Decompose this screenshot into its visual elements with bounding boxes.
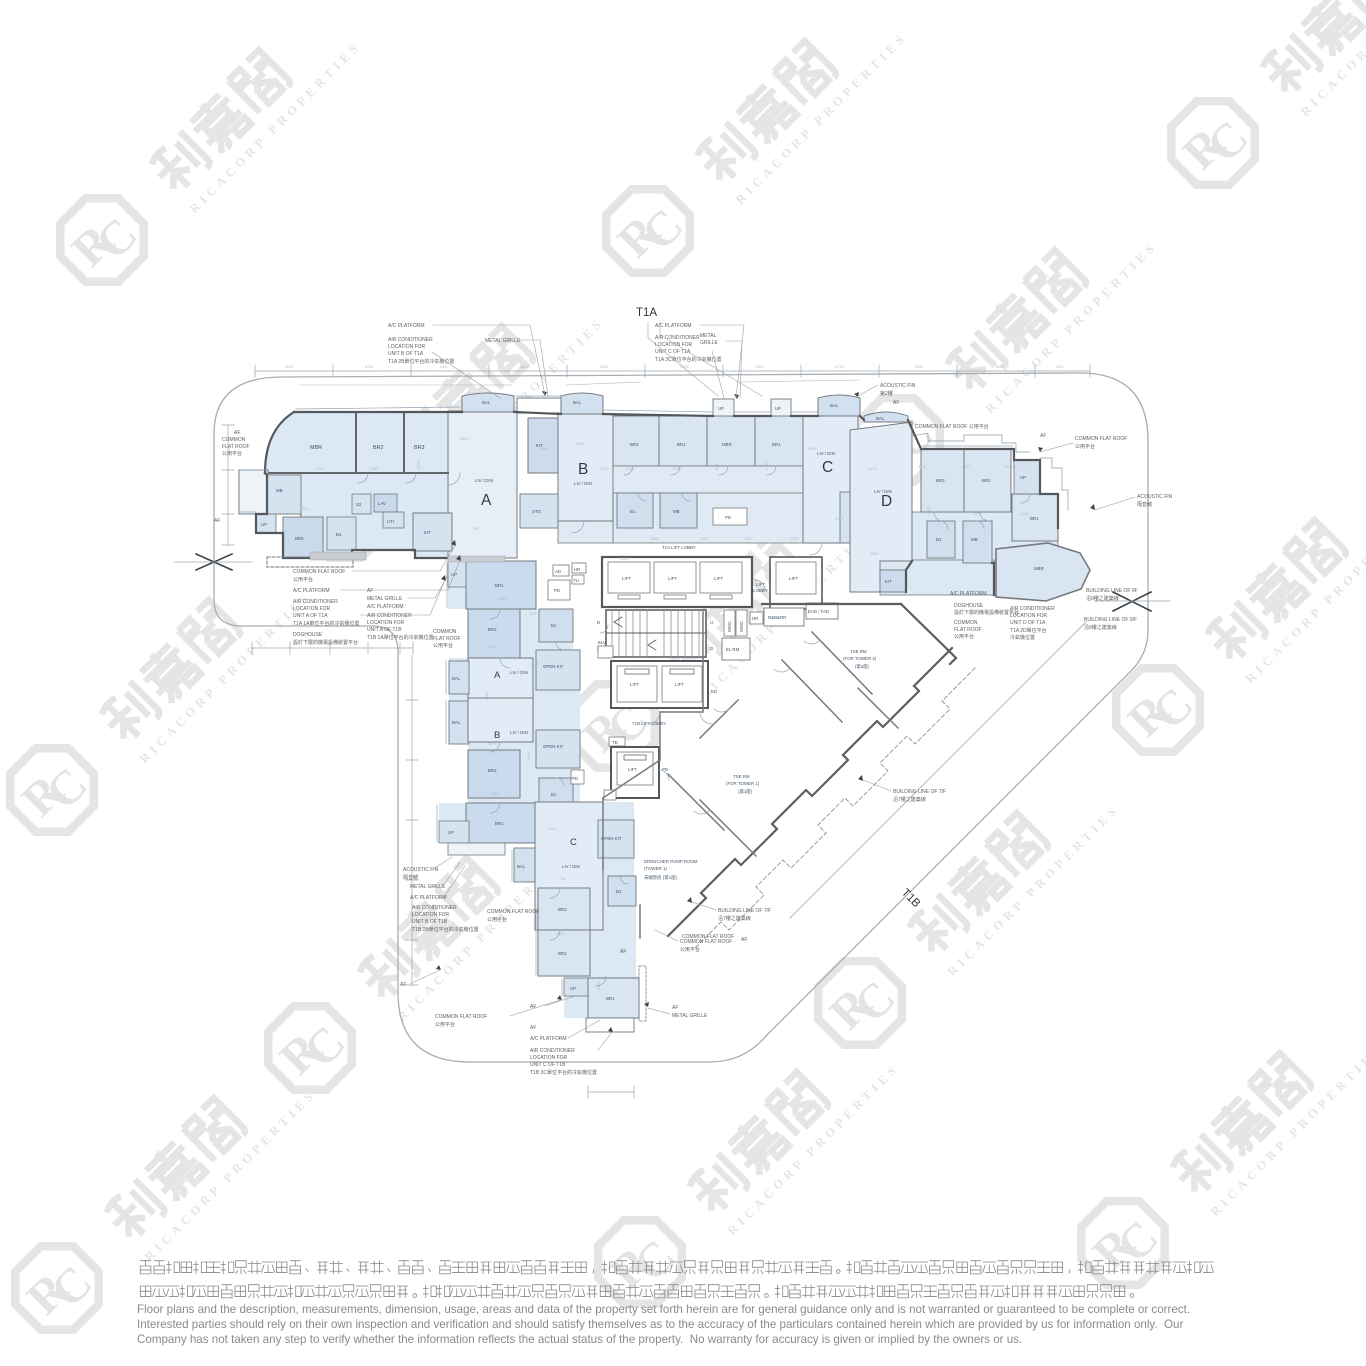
svg-text:公用平台: 公用平台 bbox=[293, 576, 313, 583]
svg-text:隔音鰭: 隔音鰭 bbox=[403, 874, 418, 881]
svg-text:TD: TD bbox=[612, 740, 618, 745]
svg-text:GRILLE: GRILLE bbox=[700, 340, 718, 346]
svg-text:A/C PLATFORM: A/C PLATFORM bbox=[367, 604, 404, 610]
svg-text:A/C PLATFORM: A/C PLATFORM bbox=[655, 323, 692, 329]
svg-text:BAL: BAL bbox=[452, 676, 461, 681]
svg-text:BR3: BR3 bbox=[936, 478, 945, 483]
svg-text:LOCATION FOR: LOCATION FOR bbox=[388, 344, 426, 350]
svg-text:U: U bbox=[710, 620, 713, 625]
svg-text:A/C PLATFORM: A/C PLATFORM bbox=[410, 895, 447, 901]
svg-text:B1: B1 bbox=[336, 532, 342, 537]
svg-text:D: D bbox=[881, 493, 892, 510]
svg-text:METAL GRILLE: METAL GRILLE bbox=[485, 338, 521, 344]
svg-text:MBR: MBR bbox=[722, 442, 732, 447]
svg-text:6262: 6262 bbox=[915, 365, 923, 369]
svg-text:AF: AF bbox=[893, 400, 899, 406]
svg-text:S2: S2 bbox=[356, 502, 362, 507]
svg-text:MB: MB bbox=[673, 509, 680, 514]
svg-text:1800: 1800 bbox=[755, 365, 763, 369]
svg-text:LIV / DIN: LIV / DIN bbox=[574, 481, 592, 486]
svg-text:AF: AF bbox=[400, 982, 406, 988]
svg-text:BAL: BAL bbox=[452, 720, 461, 725]
svg-text:B1: B1 bbox=[551, 623, 557, 628]
svg-text:ELV: ELV bbox=[598, 640, 606, 645]
svg-text:BAL: BAL bbox=[482, 400, 491, 405]
svg-text:TU: TU bbox=[573, 578, 579, 583]
svg-text:UP: UP bbox=[1020, 475, 1026, 480]
svg-text:BR5: BR5 bbox=[295, 536, 304, 541]
svg-text:UP: UP bbox=[775, 406, 781, 411]
svg-text:EL RM: EL RM bbox=[726, 647, 740, 652]
svg-text:AF: AF bbox=[367, 588, 373, 594]
svg-text:1925: 1925 bbox=[490, 792, 498, 796]
svg-text:BAL: BAL bbox=[517, 864, 526, 869]
svg-text:BUILDING LINE OF 9F: BUILDING LINE OF 9F bbox=[1086, 588, 1138, 594]
svg-text:COMMON FLAT ROOF: COMMON FLAT ROOF bbox=[1075, 436, 1127, 442]
svg-text:公用平台: 公用平台 bbox=[222, 450, 242, 457]
svg-text:PD: PD bbox=[725, 515, 731, 520]
svg-text:Company has not taken any step: Company has not taken any step to verify… bbox=[137, 1333, 1022, 1346]
svg-text:875: 875 bbox=[530, 612, 536, 616]
svg-text:UNIT A OF T1B: UNIT A OF T1B bbox=[367, 627, 402, 633]
svg-text:BR1: BR1 bbox=[606, 996, 615, 1001]
svg-text:2005: 2005 bbox=[1005, 465, 1013, 469]
svg-text:LIV / DIN: LIV / DIN bbox=[510, 730, 528, 735]
svg-text:2340: 2340 bbox=[527, 752, 531, 760]
svg-text:KIT: KIT bbox=[424, 530, 431, 535]
svg-text:(FOR TOWER 1): (FOR TOWER 1) bbox=[726, 781, 760, 786]
svg-text:KIT: KIT bbox=[885, 579, 892, 584]
svg-text:A/C PLATFORM: A/C PLATFORM bbox=[388, 323, 425, 329]
svg-text:LIFT: LIFT bbox=[789, 576, 798, 581]
svg-text:AF: AF bbox=[530, 1025, 536, 1031]
svg-text:LOCATION FOR: LOCATION FOR bbox=[293, 606, 331, 612]
svg-text:LOBBY: LOBBY bbox=[753, 588, 768, 593]
svg-text:A/C PLATFORM: A/C PLATFORM bbox=[950, 591, 987, 597]
svg-text:AF: AF bbox=[1040, 433, 1046, 439]
svg-text:1375: 1375 bbox=[765, 462, 769, 470]
svg-text:TSE RM: TSE RM bbox=[733, 774, 750, 779]
svg-text:1400: 1400 bbox=[1055, 365, 1063, 369]
svg-text:BR3: BR3 bbox=[414, 445, 425, 451]
svg-text:BR3: BR3 bbox=[558, 907, 567, 912]
svg-text:LOCATION FOR: LOCATION FOR bbox=[655, 342, 693, 348]
svg-text:METAL GRILLE: METAL GRILLE bbox=[367, 596, 403, 602]
svg-text:4475: 4475 bbox=[285, 365, 293, 369]
svg-text:METAL GRILLE: METAL GRILLE bbox=[410, 884, 446, 890]
svg-text:設於下層的機電設備裝置平台: 設於下層的機電設備裝置平台 bbox=[293, 639, 358, 646]
svg-text:LIV / DIN: LIV / DIN bbox=[562, 864, 580, 869]
svg-text:沿7樓之建築線: 沿7樓之建築線 bbox=[893, 796, 926, 803]
svg-text:BR1: BR1 bbox=[772, 442, 781, 447]
svg-text:AF: AF bbox=[620, 949, 626, 955]
svg-text:OPEN KIT: OPEN KIT bbox=[543, 744, 564, 749]
svg-text:T1B LIFT LOBBY: T1B LIFT LOBBY bbox=[632, 721, 666, 726]
svg-text:3405: 3405 bbox=[575, 442, 583, 446]
svg-text:LOCATION FOR: LOCATION FOR bbox=[1010, 613, 1048, 619]
svg-text:OPEN KIT: OPEN KIT bbox=[601, 836, 622, 841]
svg-text:末端泵房 (第1座): 末端泵房 (第1座) bbox=[644, 874, 677, 881]
svg-text:EAD / FAD: EAD / FAD bbox=[808, 609, 829, 614]
svg-text:FLAT ROOF: FLAT ROOF bbox=[222, 444, 250, 450]
svg-text:BUILDING LINE OF 7/F: BUILDING LINE OF 7/F bbox=[893, 789, 946, 795]
svg-text:1470: 1470 bbox=[962, 465, 970, 469]
svg-text:UNIT A OF T1A: UNIT A OF T1A bbox=[293, 613, 328, 619]
svg-text:LIFT: LIFT bbox=[668, 576, 677, 581]
svg-text:HR: HR bbox=[752, 616, 758, 621]
svg-text:UNIT C OF T1B: UNIT C OF T1B bbox=[530, 1062, 566, 1068]
svg-text:METAL: METAL bbox=[700, 333, 717, 339]
svg-text:B1: B1 bbox=[630, 509, 636, 514]
svg-text:AIR CONDITIONER: AIR CONDITIONER bbox=[388, 337, 433, 343]
svg-text:B: B bbox=[578, 461, 588, 478]
svg-text:COMMON: COMMON bbox=[433, 629, 457, 635]
svg-text:公用平台: 公用平台 bbox=[954, 633, 974, 640]
svg-text:1470: 1470 bbox=[868, 467, 876, 471]
svg-text:HR: HR bbox=[574, 567, 580, 572]
svg-text:沿7樓之建築線: 沿7樓之建築線 bbox=[718, 915, 751, 922]
svg-text:AF: AF bbox=[214, 518, 220, 524]
svg-text:DOGHOUSE: DOGHOUSE bbox=[954, 603, 984, 609]
svg-text:BR1: BR1 bbox=[677, 442, 686, 447]
svg-text:ACOUSTIC FIN: ACOUSTIC FIN bbox=[1137, 494, 1173, 500]
svg-text:A: A bbox=[481, 492, 492, 509]
svg-text:TSE RM: TSE RM bbox=[850, 649, 867, 654]
svg-text:2340: 2340 bbox=[498, 597, 506, 601]
svg-text:LOCATION FOR: LOCATION FOR bbox=[367, 620, 405, 626]
svg-text:COMMON FLAT ROOF 公用平台: COMMON FLAT ROOF 公用平台 bbox=[915, 423, 989, 430]
svg-text:ACOUSTIC FIN: ACOUSTIC FIN bbox=[403, 867, 439, 873]
svg-text:D: D bbox=[597, 620, 600, 625]
svg-text:BUILDING LINE OF 9/F: BUILDING LINE OF 9/F bbox=[1084, 617, 1137, 623]
svg-text:3110: 3110 bbox=[918, 465, 926, 469]
svg-text:公用平台: 公用平台 bbox=[487, 916, 507, 923]
svg-text:COMMON FLAT ROOF: COMMON FLAT ROOF bbox=[682, 934, 734, 940]
svg-text:LAV: LAV bbox=[378, 501, 386, 506]
svg-text:750: 750 bbox=[560, 877, 566, 881]
svg-text:BR2: BR2 bbox=[373, 445, 384, 451]
svg-text:LIFT: LIFT bbox=[628, 767, 637, 772]
svg-text:第2樓: 第2樓 bbox=[880, 390, 893, 397]
svg-text:ACOUSTIC FIN: ACOUSTIC FIN bbox=[880, 383, 916, 389]
svg-text:2150: 2150 bbox=[600, 467, 608, 471]
svg-text:T1A 2D單位平台: T1A 2D單位平台 bbox=[1010, 627, 1047, 634]
svg-text:A/C PLATFORM: A/C PLATFORM bbox=[530, 1036, 567, 1042]
svg-text:沿9樓之建築線: 沿9樓之建築線 bbox=[1084, 624, 1117, 631]
svg-text:BUILDING LINE OF 7/F: BUILDING LINE OF 7/F bbox=[718, 908, 771, 914]
svg-text:UP: UP bbox=[448, 830, 454, 835]
svg-text:2690: 2690 bbox=[870, 552, 878, 556]
svg-text:1625: 1625 bbox=[530, 662, 538, 666]
svg-text:LOCATION FOR: LOCATION FOR bbox=[412, 912, 450, 918]
svg-text:LIV / DIN: LIV / DIN bbox=[510, 670, 528, 675]
svg-text:2750: 2750 bbox=[315, 467, 323, 471]
svg-text:BR1: BR1 bbox=[1030, 516, 1039, 521]
svg-text:AF: AF bbox=[234, 430, 240, 436]
svg-text:1150: 1150 bbox=[370, 467, 378, 471]
svg-text:AIR CONDITIONER: AIR CONDITIONER bbox=[1010, 606, 1055, 612]
svg-text:公用平台: 公用平台 bbox=[435, 1021, 455, 1028]
svg-text:D: D bbox=[710, 646, 713, 651]
svg-text:DOGHOUSE: DOGHOUSE bbox=[293, 632, 323, 638]
svg-text:UNIT B OF T1A: UNIT B OF T1A bbox=[388, 351, 424, 357]
svg-text:METAL GRILLE: METAL GRILLE bbox=[672, 1013, 708, 1019]
svg-text:BR1: BR1 bbox=[495, 583, 504, 588]
svg-text:WMC: WMC bbox=[739, 621, 744, 632]
svg-text:BR2: BR2 bbox=[982, 478, 991, 483]
svg-text:LIV / DIN: LIV / DIN bbox=[817, 451, 835, 456]
svg-text:LIFT: LIFT bbox=[714, 576, 723, 581]
svg-text:4410: 4410 bbox=[440, 365, 448, 369]
svg-text:公用平台: 公用平台 bbox=[680, 946, 700, 953]
svg-text:3400: 3400 bbox=[995, 365, 1003, 369]
svg-text:6240: 6240 bbox=[600, 365, 608, 369]
svg-text:AIR CONDITIONER: AIR CONDITIONER bbox=[367, 613, 412, 619]
svg-text:冷氣機位置: 冷氣機位置 bbox=[1010, 634, 1035, 641]
svg-text:T1A: T1A bbox=[636, 307, 657, 319]
svg-text:UNIT C OF T1A: UNIT C OF T1A bbox=[655, 349, 691, 355]
svg-text:COMMON FLAT ROOF: COMMON FLAT ROOF bbox=[435, 1014, 487, 1020]
svg-text:AD: AD bbox=[555, 569, 561, 574]
svg-text:T1A 2B單位平台的冷氣機位置: T1A 2B單位平台的冷氣機位置 bbox=[388, 358, 454, 365]
svg-text:4230: 4230 bbox=[700, 537, 708, 541]
svg-text:3075: 3075 bbox=[417, 462, 421, 470]
svg-text:隔音鰭: 隔音鰭 bbox=[1137, 501, 1152, 508]
svg-text:1925: 1925 bbox=[300, 507, 308, 511]
svg-text:AIR CONDITIONER: AIR CONDITIONER bbox=[293, 599, 338, 605]
svg-text:1375: 1375 bbox=[790, 537, 798, 541]
svg-text:1800: 1800 bbox=[556, 932, 564, 936]
svg-text:UP: UP bbox=[718, 406, 724, 411]
svg-text:ED: ED bbox=[711, 689, 717, 694]
svg-text:MB: MB bbox=[276, 488, 283, 493]
svg-text:T1A LIFT LOBBY: T1A LIFT LOBBY bbox=[662, 545, 696, 550]
svg-text:2690: 2690 bbox=[808, 447, 816, 451]
svg-text:DRENCHER PUMP ROOM: DRENCHER PUMP ROOM bbox=[644, 859, 698, 864]
svg-text:BAL: BAL bbox=[876, 416, 885, 421]
svg-text:PD: PD bbox=[554, 588, 560, 593]
svg-text:B: B bbox=[494, 730, 500, 741]
svg-text:2005: 2005 bbox=[927, 507, 931, 515]
svg-text:MB: MB bbox=[971, 537, 978, 542]
svg-text:公用平台: 公用平台 bbox=[433, 642, 453, 649]
svg-text:R&B&RR: R&B&RR bbox=[768, 615, 786, 620]
svg-text:COMMON: COMMON bbox=[222, 437, 246, 443]
svg-text:3110: 3110 bbox=[835, 517, 843, 521]
svg-text:PD: PD bbox=[572, 776, 578, 781]
svg-text:2775: 2775 bbox=[835, 365, 843, 369]
svg-text:FLAT ROOF: FLAT ROOF bbox=[433, 636, 461, 642]
svg-text:1625: 1625 bbox=[1020, 512, 1028, 516]
svg-text:750: 750 bbox=[472, 527, 478, 531]
svg-text:MBR: MBR bbox=[1034, 566, 1044, 571]
svg-text:AIR CONDITIONER: AIR CONDITIONER bbox=[412, 905, 457, 911]
svg-text:BAL: BAL bbox=[830, 403, 839, 408]
svg-text:925: 925 bbox=[715, 464, 719, 470]
svg-text:A: A bbox=[494, 670, 501, 681]
svg-text:WMC: WMC bbox=[727, 621, 732, 632]
svg-text:LIV / DIN: LIV / DIN bbox=[475, 478, 493, 483]
svg-text:AIR CONDITIONER: AIR CONDITIONER bbox=[530, 1048, 575, 1054]
svg-text:BR1: BR1 bbox=[495, 821, 504, 826]
svg-text:C: C bbox=[822, 459, 833, 476]
svg-text:MBR: MBR bbox=[310, 445, 322, 451]
svg-text:(第2座): (第2座) bbox=[855, 663, 870, 670]
svg-text:UP: UP bbox=[570, 986, 576, 991]
svg-text:BR2: BR2 bbox=[488, 627, 497, 632]
svg-text:T1B 1A單位平台的冷氣機位置: T1B 1A單位平台的冷氣機位置 bbox=[367, 634, 434, 641]
svg-text:3075: 3075 bbox=[488, 742, 496, 746]
svg-text:T1A 1A單位平台的冷氣機位置: T1A 1A單位平台的冷氣機位置 bbox=[293, 620, 359, 627]
svg-text:LIFT: LIFT bbox=[630, 682, 639, 687]
svg-text:LIFT: LIFT bbox=[675, 682, 684, 687]
svg-text:1800: 1800 bbox=[540, 447, 548, 451]
svg-text:C: C bbox=[570, 837, 577, 848]
svg-text:(第1座): (第1座) bbox=[738, 788, 753, 795]
svg-text:COMMON FLAT ROOF: COMMON FLAT ROOF bbox=[487, 909, 539, 915]
svg-text:9755: 9755 bbox=[365, 365, 373, 369]
svg-text:BAL: BAL bbox=[573, 400, 582, 405]
svg-text:T1B 3C單位平台的冷氣機位置: T1B 3C單位平台的冷氣機位置 bbox=[530, 1069, 597, 1076]
svg-text:(TOWER 1): (TOWER 1) bbox=[644, 866, 667, 871]
svg-text:2150: 2150 bbox=[620, 557, 628, 561]
svg-text:UTI: UTI bbox=[387, 519, 394, 524]
svg-text:1150: 1150 bbox=[485, 692, 489, 700]
svg-text:沿9樓之建築線: 沿9樓之建築線 bbox=[1086, 595, 1119, 602]
svg-text:925: 925 bbox=[745, 537, 751, 541]
svg-text:公用平台: 公用平台 bbox=[1075, 443, 1095, 450]
svg-text:COMMON: COMMON bbox=[954, 620, 978, 626]
svg-text:UNIT B OF T1B: UNIT B OF T1B bbox=[412, 919, 448, 925]
svg-text:2750: 2750 bbox=[488, 645, 496, 649]
svg-text:LOCATION FOR: LOCATION FOR bbox=[530, 1055, 568, 1061]
svg-text:COMMON FLAT ROOF: COMMON FLAT ROOF bbox=[293, 569, 345, 575]
svg-text:BR2: BR2 bbox=[558, 951, 567, 956]
svg-text:Interested parties should rely: Interested parties should rely on their … bbox=[137, 1318, 1183, 1331]
svg-text:A/C PLATFORM: A/C PLATFORM bbox=[293, 588, 330, 594]
svg-text:LIV / DIN: LIV / DIN bbox=[874, 489, 892, 494]
svg-text:B1: B1 bbox=[936, 537, 942, 542]
svg-text:AF: AF bbox=[672, 1005, 678, 1011]
svg-text:T1B: T1B bbox=[899, 887, 923, 911]
svg-text:(FOR TOWER 2): (FOR TOWER 2) bbox=[843, 656, 877, 661]
svg-text:AF: AF bbox=[741, 937, 747, 943]
svg-text:LIFT: LIFT bbox=[622, 576, 631, 581]
svg-text:9800: 9800 bbox=[520, 365, 528, 369]
svg-text:FLAT ROOF: FLAT ROOF bbox=[954, 627, 982, 633]
svg-text:Floor plans and the descriptio: Floor plans and the description, measure… bbox=[137, 1303, 1190, 1316]
svg-text:1050: 1050 bbox=[650, 537, 658, 541]
svg-text:UP: UP bbox=[261, 522, 267, 527]
svg-text:2230: 2230 bbox=[460, 437, 468, 441]
svg-text:B1: B1 bbox=[616, 889, 622, 894]
svg-text:BR2: BR2 bbox=[630, 442, 639, 447]
svg-text:T1B 2B單位平台的冷氣機位置: T1B 2B單位平台的冷氣機位置 bbox=[412, 926, 479, 933]
svg-text:OPEN KIT: OPEN KIT bbox=[543, 664, 564, 669]
svg-text:PD: PD bbox=[662, 767, 668, 772]
svg-text:UNIT D OF T1A: UNIT D OF T1A bbox=[1010, 620, 1046, 626]
svg-text:BR2: BR2 bbox=[488, 768, 497, 773]
svg-text:T1A 3C單位平台的冷氣機位置: T1A 3C單位平台的冷氣機位置 bbox=[655, 356, 722, 363]
svg-text:B1: B1 bbox=[551, 792, 557, 797]
svg-text:STO: STO bbox=[532, 509, 542, 514]
svg-text:2230: 2230 bbox=[548, 827, 556, 831]
